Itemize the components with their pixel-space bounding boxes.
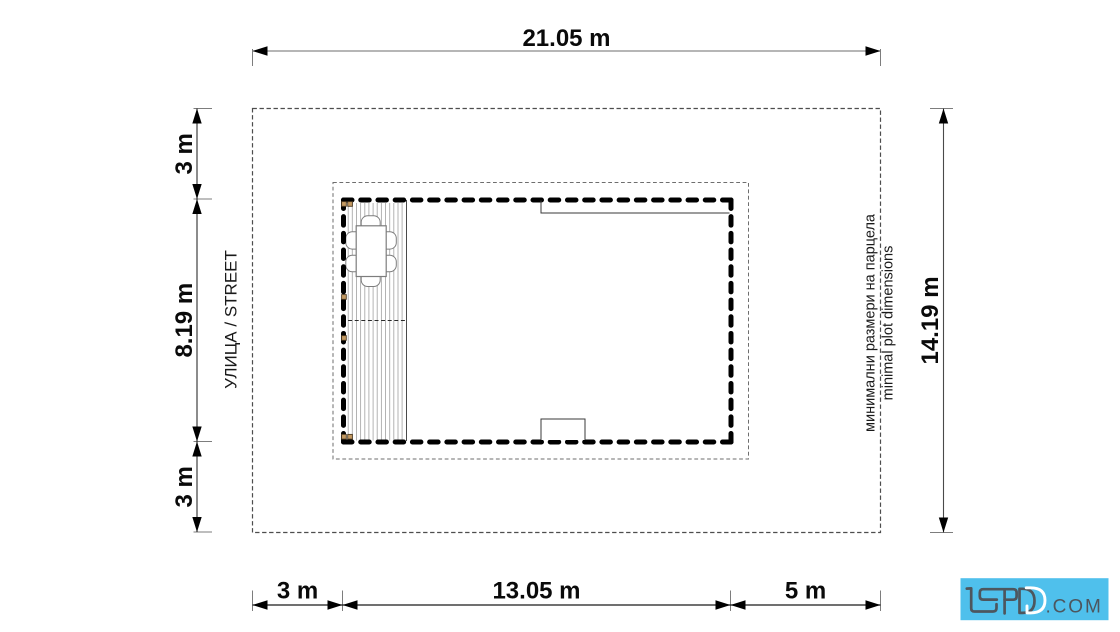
svg-text:minimal plot dimensions: minimal plot dimensions — [881, 246, 897, 401]
svg-text:5 m: 5 m — [785, 578, 826, 605]
svg-text:21.05 m: 21.05 m — [522, 25, 610, 52]
svg-text:3 m: 3 m — [277, 578, 318, 605]
svg-text:14.19 m: 14.19 m — [917, 276, 944, 364]
svg-text:.COM: .COM — [1046, 597, 1103, 618]
svg-text:13.05 m: 13.05 m — [492, 578, 580, 605]
svg-text:3 m: 3 m — [171, 466, 198, 507]
svg-text:минимални размери на парцела: минимални размери на парцела — [863, 213, 879, 432]
svg-text:8.19 m: 8.19 m — [171, 283, 198, 358]
svg-text:УЛИЦА / STREET: УЛИЦА / STREET — [222, 250, 241, 389]
svg-text:3 m: 3 m — [171, 133, 198, 174]
